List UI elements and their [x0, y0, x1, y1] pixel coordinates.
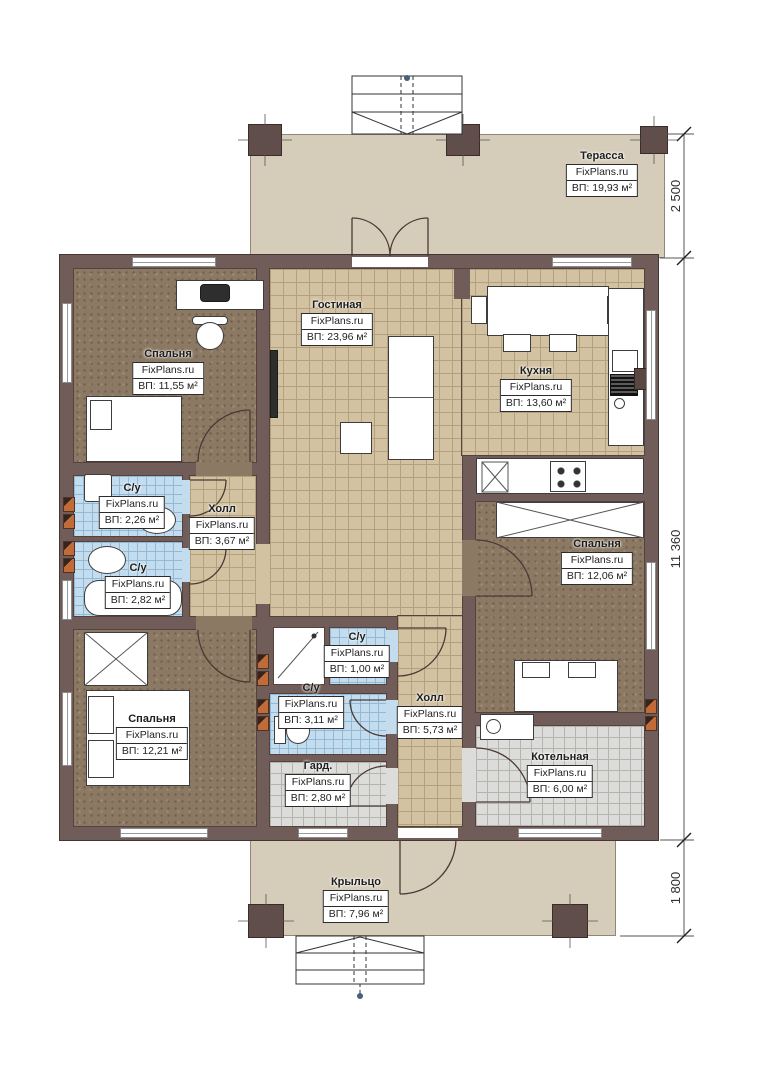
room-area: ВП: 13,60 м² [501, 396, 571, 411]
room-name: Холл [397, 692, 463, 704]
room-area: ВП: 12,21 м² [117, 744, 187, 759]
closet-bedroom-bottom-left [84, 632, 148, 686]
room-name: С/у [324, 631, 390, 643]
room-label-bedroom-bottom-left: Спальня FixPlans.ru ВП: 12,21 м² [116, 713, 188, 760]
printer [200, 284, 230, 302]
room-area: ВП: 3,11 м² [279, 713, 343, 728]
room-name: Холл [189, 503, 255, 515]
entry-door-gap [352, 257, 428, 267]
room-area: ВП: 3,67 м² [190, 534, 254, 549]
room-label-bathroom-3: С/у FixPlans.ru ВП: 1,00 м² [324, 631, 390, 678]
room-label-hall-2: Холл FixPlans.ru ВП: 5,73 м² [397, 692, 463, 739]
brand-watermark: FixPlans.ru [562, 553, 632, 569]
brand-watermark: FixPlans.ru [106, 577, 170, 593]
brand-watermark: FixPlans.ru [133, 363, 203, 379]
bed-pillow [568, 662, 596, 678]
room-label-kitchen: Кухня FixPlans.ru ВП: 13,60 м² [500, 365, 572, 412]
floor-plan-canvas: Терасса FixPlans.ru ВП: 19,93 м² Спальня… [0, 0, 763, 1080]
room-name: С/у [105, 562, 171, 574]
room-name: Кухня [500, 365, 572, 377]
side-table [340, 422, 372, 454]
window-right-kitchen [646, 310, 656, 420]
dimension-terrace-depth: 2 500 [668, 161, 684, 231]
terrace-post [446, 124, 480, 156]
room-name: Гард. [285, 760, 351, 772]
room-name: Спальня [132, 348, 204, 360]
dining-table [487, 286, 609, 336]
window-bottom-wardrobe [298, 828, 348, 838]
bed-pillow [522, 662, 550, 678]
room-label-bedroom-top-left: Спальня FixPlans.ru ВП: 11,55 м² [132, 348, 204, 395]
brand-watermark: FixPlans.ru [567, 165, 637, 181]
window-left-bedroom1 [62, 303, 72, 383]
shower-stall [274, 628, 324, 684]
room-label-bathroom-1: С/у FixPlans.ru ВП: 2,26 м² [99, 482, 165, 529]
brand-watermark: FixPlans.ru [398, 707, 462, 723]
room-area: ВП: 2,80 м² [286, 791, 350, 806]
vent-block [257, 654, 269, 686]
stairs-bottom [296, 936, 424, 999]
dining-chair-bottom-2 [549, 334, 577, 352]
room-label-bathroom-4: С/у FixPlans.ru ВП: 3,11 м² [278, 682, 344, 729]
closet-bedroom-right [496, 502, 644, 538]
bed-single-pillow [90, 400, 112, 430]
brand-watermark: FixPlans.ru [190, 518, 254, 534]
window-left-bedroom3 [62, 692, 72, 766]
room-area: ВП: 12,06 м² [562, 569, 632, 584]
dining-chair-bottom-1 [503, 334, 531, 352]
room-name: Терасса [566, 150, 638, 162]
vent-block [63, 497, 75, 529]
dining-chair-left [471, 296, 487, 324]
room-area: ВП: 19,93 м² [567, 181, 637, 196]
room-name: Спальня [561, 538, 633, 550]
room-area: ВП: 5,73 м² [398, 723, 462, 738]
room-name: Котельная [527, 751, 593, 763]
room-name: С/у [99, 482, 165, 494]
bed-pillow [88, 696, 114, 734]
dimension-porch-depth: 1 800 [668, 853, 684, 923]
room-area: ВП: 7,96 м² [324, 907, 388, 922]
brand-watermark: FixPlans.ru [286, 775, 350, 791]
bed-pillow [88, 740, 114, 778]
terrace-post [248, 124, 282, 156]
room-label-terrace: Терасса FixPlans.ru ВП: 19,93 м² [566, 150, 638, 197]
passage-hall1-living [256, 544, 270, 604]
vent-block [257, 699, 269, 731]
brand-watermark: FixPlans.ru [100, 497, 164, 513]
door-opening-bedroom3 [196, 616, 252, 630]
kitchen-fixture [614, 398, 625, 409]
room-area: ВП: 6,00 м² [528, 782, 592, 797]
porch-post [248, 904, 284, 938]
door-opening-bedroom1 [196, 462, 252, 476]
wall-stub-kitchen [454, 269, 470, 299]
room-label-boiler-room: Котельная FixPlans.ru ВП: 6,00 м² [527, 751, 593, 798]
stove-4-burner [550, 461, 586, 492]
porch-door-gap [398, 828, 458, 838]
room-label-hall-1: Холл FixPlans.ru ВП: 3,67 м² [189, 503, 255, 550]
window-top-kitchen [552, 257, 632, 267]
brand-watermark: FixPlans.ru [528, 766, 592, 782]
window-bottom-bedroom3 [120, 828, 208, 838]
window-left-bathroom2 [62, 580, 72, 620]
dimension-house-length: 11 360 [668, 514, 684, 584]
door-opening-bedroom2 [462, 540, 476, 596]
room-label-porch: Крыльцо FixPlans.ru ВП: 7,96 м² [323, 876, 389, 923]
porch-post [552, 904, 588, 938]
room-area: ВП: 1,00 м² [325, 662, 389, 677]
room-name: С/у [278, 682, 344, 694]
brand-watermark: FixPlans.ru [324, 891, 388, 907]
room-name: Гостиная [301, 299, 373, 311]
room-area: ВП: 2,26 м² [100, 513, 164, 528]
room-label-living-room: Гостиная FixPlans.ru ВП: 23,96 м² [301, 299, 373, 346]
room-area: ВП: 23,96 м² [302, 330, 372, 345]
room-label-bedroom-right: Спальня FixPlans.ru ВП: 12,06 м² [561, 538, 633, 585]
window-top-bedroom1 [132, 257, 216, 267]
brand-watermark: FixPlans.ru [117, 728, 187, 744]
room-label-bathroom-2: С/у FixPlans.ru ВП: 2,82 м² [105, 562, 171, 609]
room-name: Крыльцо [323, 876, 389, 888]
vent-block [645, 699, 657, 731]
tv-unit [388, 336, 434, 460]
window-bottom-boiler [518, 828, 602, 838]
window-right-bedroom2 [646, 562, 656, 650]
room-area: ВП: 2,82 м² [106, 593, 170, 608]
brand-watermark: FixPlans.ru [302, 314, 372, 330]
room-name: Спальня [116, 713, 188, 725]
brand-watermark: FixPlans.ru [325, 646, 389, 662]
boiler-dial [486, 719, 501, 734]
vent-block [63, 541, 75, 573]
brand-watermark: FixPlans.ru [279, 697, 343, 713]
tv-panel [270, 350, 278, 418]
room-label-wardrobe: Гард. FixPlans.ru ВП: 2,80 м² [285, 760, 351, 807]
room-area: ВП: 11,55 м² [133, 379, 203, 394]
door-opening-wardrobe [386, 768, 398, 804]
door-opening-bathroom2 [182, 548, 190, 582]
office-chair [196, 322, 224, 350]
door-opening-boiler [462, 748, 476, 802]
brand-watermark: FixPlans.ru [501, 380, 571, 396]
terrace-post [640, 126, 668, 154]
